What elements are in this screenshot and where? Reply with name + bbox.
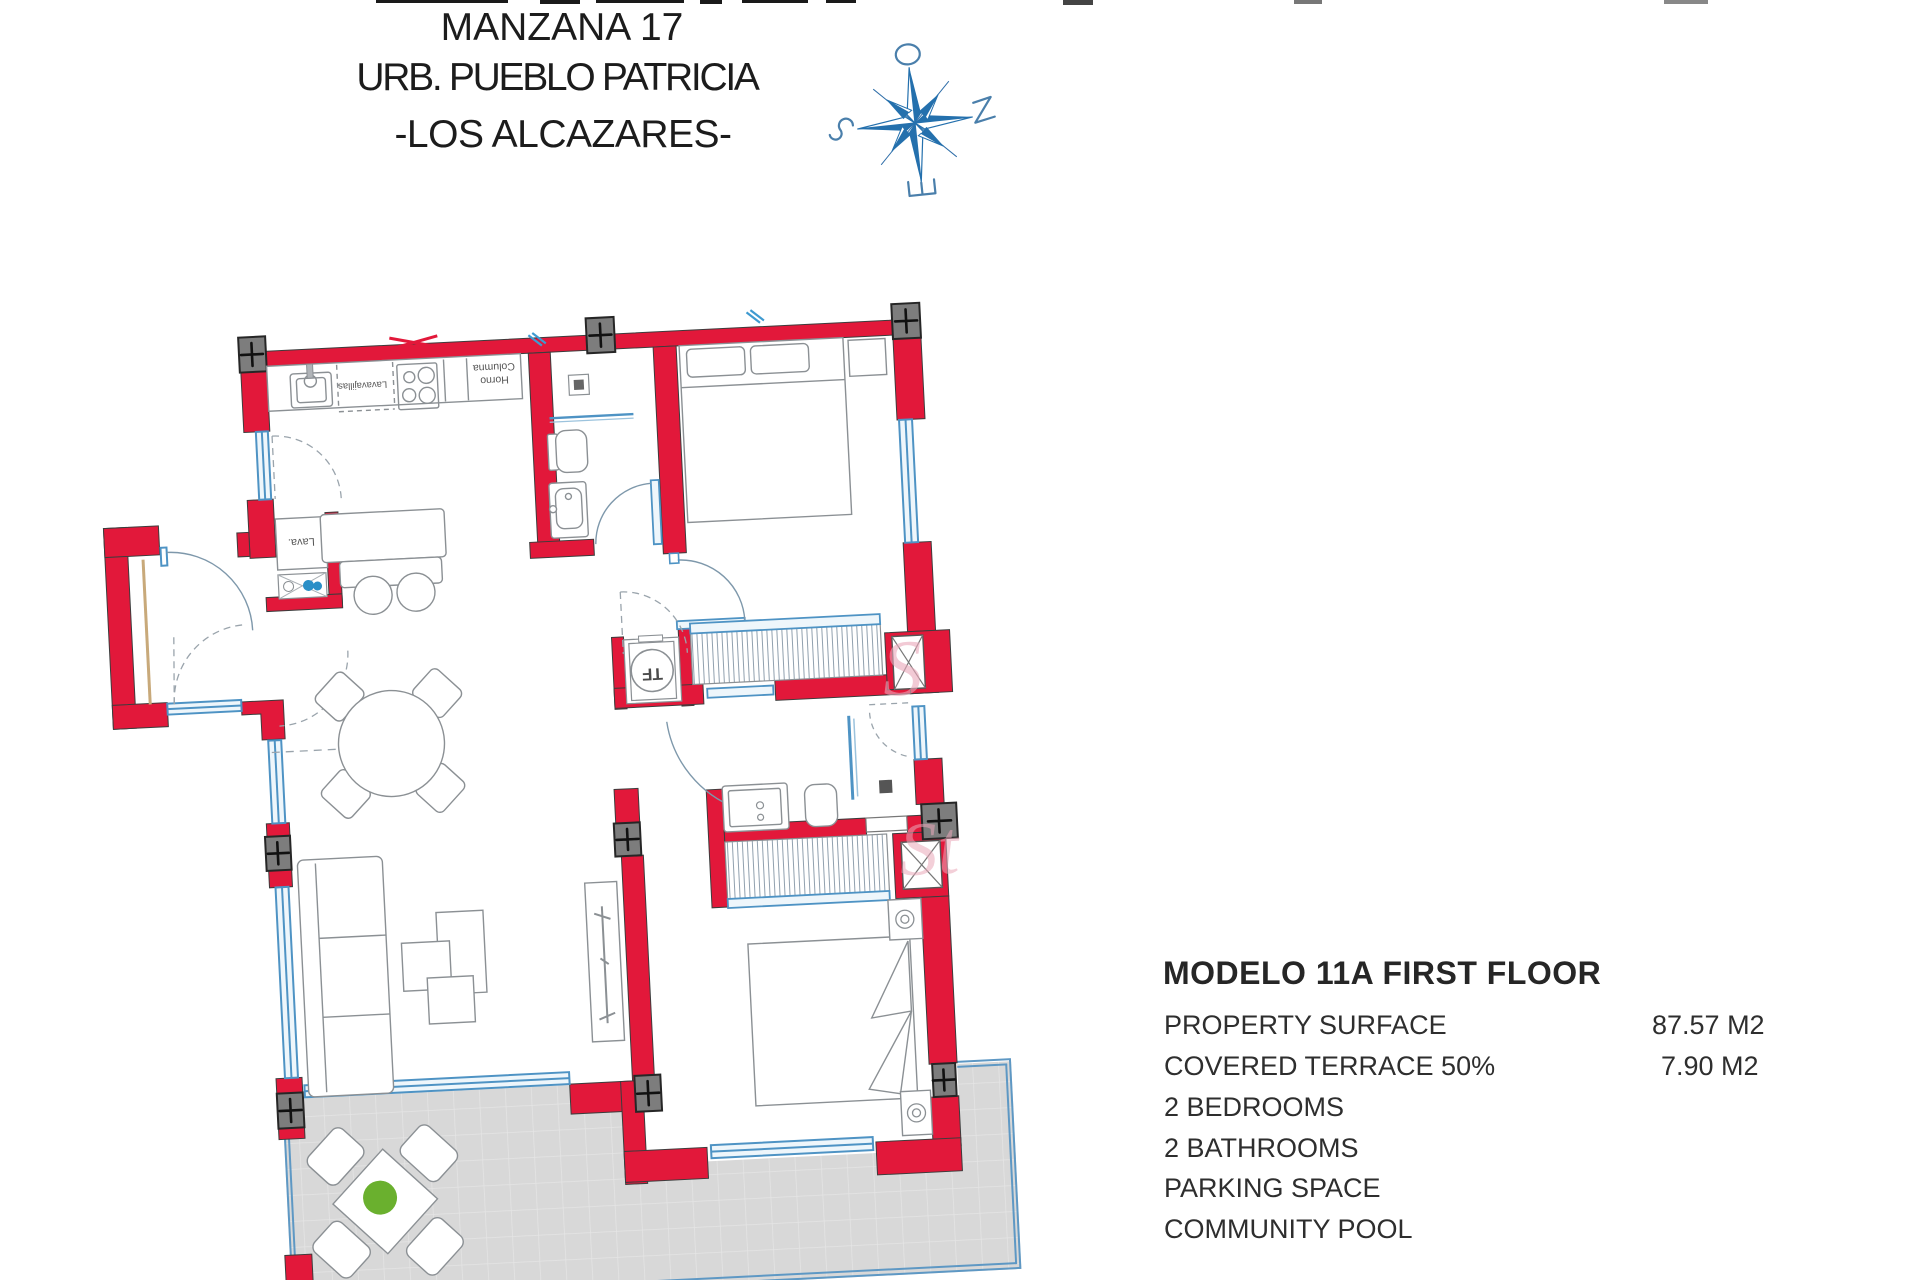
svg-text:S: S — [880, 624, 924, 714]
svg-text:TF: TF — [642, 664, 664, 684]
svg-text:Columna: Columna — [472, 360, 515, 374]
svg-text:St: St — [897, 805, 962, 892]
svg-text:Horno: Horno — [480, 373, 509, 386]
svg-text:Lava.: Lava. — [288, 535, 315, 548]
